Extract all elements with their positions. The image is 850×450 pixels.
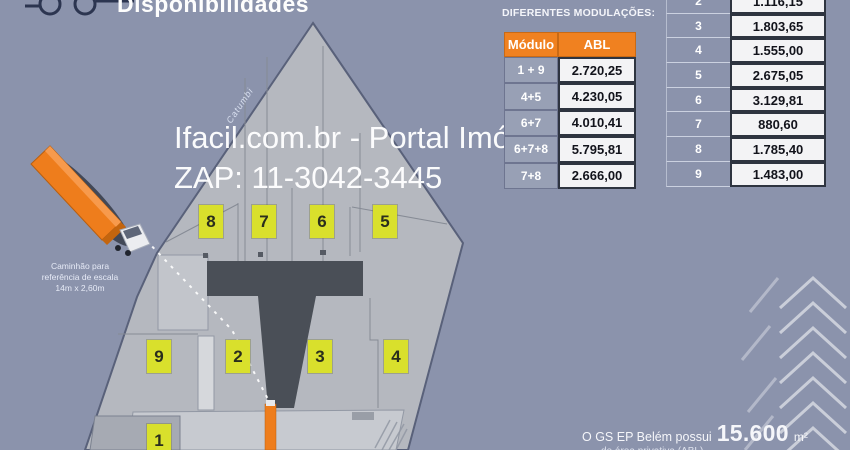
truck-wheel [115,245,121,251]
module-cell: 8 [666,137,730,162]
truck-illustration [31,146,150,256]
abl-cell: 880,60 [730,112,826,137]
module-cell: 1 + 9 [504,57,558,83]
table-row: 6 3.129,81 [666,88,826,113]
footer-area-statement: O GS EP Belém possui 15.600 m² [582,420,808,447]
abl-cell: 1.483,00 [730,162,826,187]
module-badge-4: 4 [384,340,408,373]
truck-caption-line1: Caminhão para [26,261,134,272]
abl-cell: 2.666,00 [558,163,636,189]
table-row: 2 1.116,15 [666,0,826,14]
table-row: 6+7 4.010,41 [504,110,636,136]
parked-truck [265,400,276,450]
abl-cell: 3.129,81 [730,88,826,113]
table-row: 1 + 9 2.720,25 [504,57,636,83]
trailer-body [31,146,121,240]
module-cell: 2 [666,0,730,14]
dock-strip [198,336,214,410]
abl-cell: 2.675,05 [730,63,826,88]
module-badge-1: 1 [147,424,171,450]
module-badge-2: 2 [226,340,250,373]
modules-abl-table: 2 1.116,15 3 1.803,65 4 1.555,00 5 2.675… [666,0,826,187]
abl-cell: 1.803,65 [730,14,826,39]
module-badge-9: 9 [147,340,171,373]
abl-cell: 5.795,81 [558,136,636,162]
table-row: 8 1.785,40 [666,137,826,162]
modulations-header-row: Módulo ABL [504,32,636,57]
abl-cell: 4.010,41 [558,110,636,136]
header-cell-module: Módulo [504,32,558,57]
footer-prefix: O GS EP Belém possui [582,430,712,444]
module-cell: 7 [666,112,730,137]
table-row: 9 1.483,00 [666,162,826,187]
table-row: 5 2.675,05 [666,63,826,88]
footer-area-unit: m² [794,430,808,444]
left-court-area [158,255,208,330]
module-cell: 7+8 [504,163,558,189]
module-cell: 4+5 [504,83,558,109]
truck-caption-line2: referência de escala [26,272,134,283]
modulations-table: Módulo ABL 1 + 9 2.720,25 4+5 4.230,05 6… [504,32,636,189]
module-cell: 9 [666,162,730,187]
table-row: 4+5 4.230,05 [504,83,636,109]
truck-reference-caption: Caminhão para referência de escala 14m x… [26,261,134,294]
abl-cell: 1.116,15 [730,0,826,14]
abl-cell: 1.785,40 [730,137,826,162]
module-cell: 6+7+8 [504,136,558,162]
flyer-page: Catumbi [0,0,850,450]
page-title: Disponibilidades [117,0,309,18]
truck-caption-line3: 14m x 2,60m [26,283,134,294]
abl-cell: 4.230,05 [558,83,636,109]
module-badge-6: 6 [310,205,334,238]
table-row: 3 1.803,65 [666,14,826,39]
module-cell: 5 [666,63,730,88]
modulations-table-title: DIFERENTES MODULAÇÕES: [502,7,655,19]
truck-wheel [125,250,131,256]
module-badge-5: 5 [373,205,397,238]
footer-area-value: 15.600 [717,420,789,447]
road-horizontal [207,261,363,296]
abl-cell: 2.720,25 [558,57,636,83]
module-cell: 4 [666,38,730,63]
module-badge-7: 7 [252,205,276,238]
module-badge-3: 3 [308,340,332,373]
table-row: 6+7+8 5.795,81 [504,136,636,162]
header-cell-abl: ABL [558,32,636,57]
table-row: 4 1.555,00 [666,38,826,63]
module-cell: 6+7 [504,110,558,136]
module-cell: 6 [666,88,730,113]
module-cell: 3 [666,14,730,39]
table-row: 7 880,60 [666,112,826,137]
footer-clipped-line: de área privativa (ABL) [601,446,703,450]
table-row: 7+8 2.666,00 [504,163,636,189]
module-badge-8: 8 [199,205,223,238]
abl-cell: 1.555,00 [730,38,826,63]
